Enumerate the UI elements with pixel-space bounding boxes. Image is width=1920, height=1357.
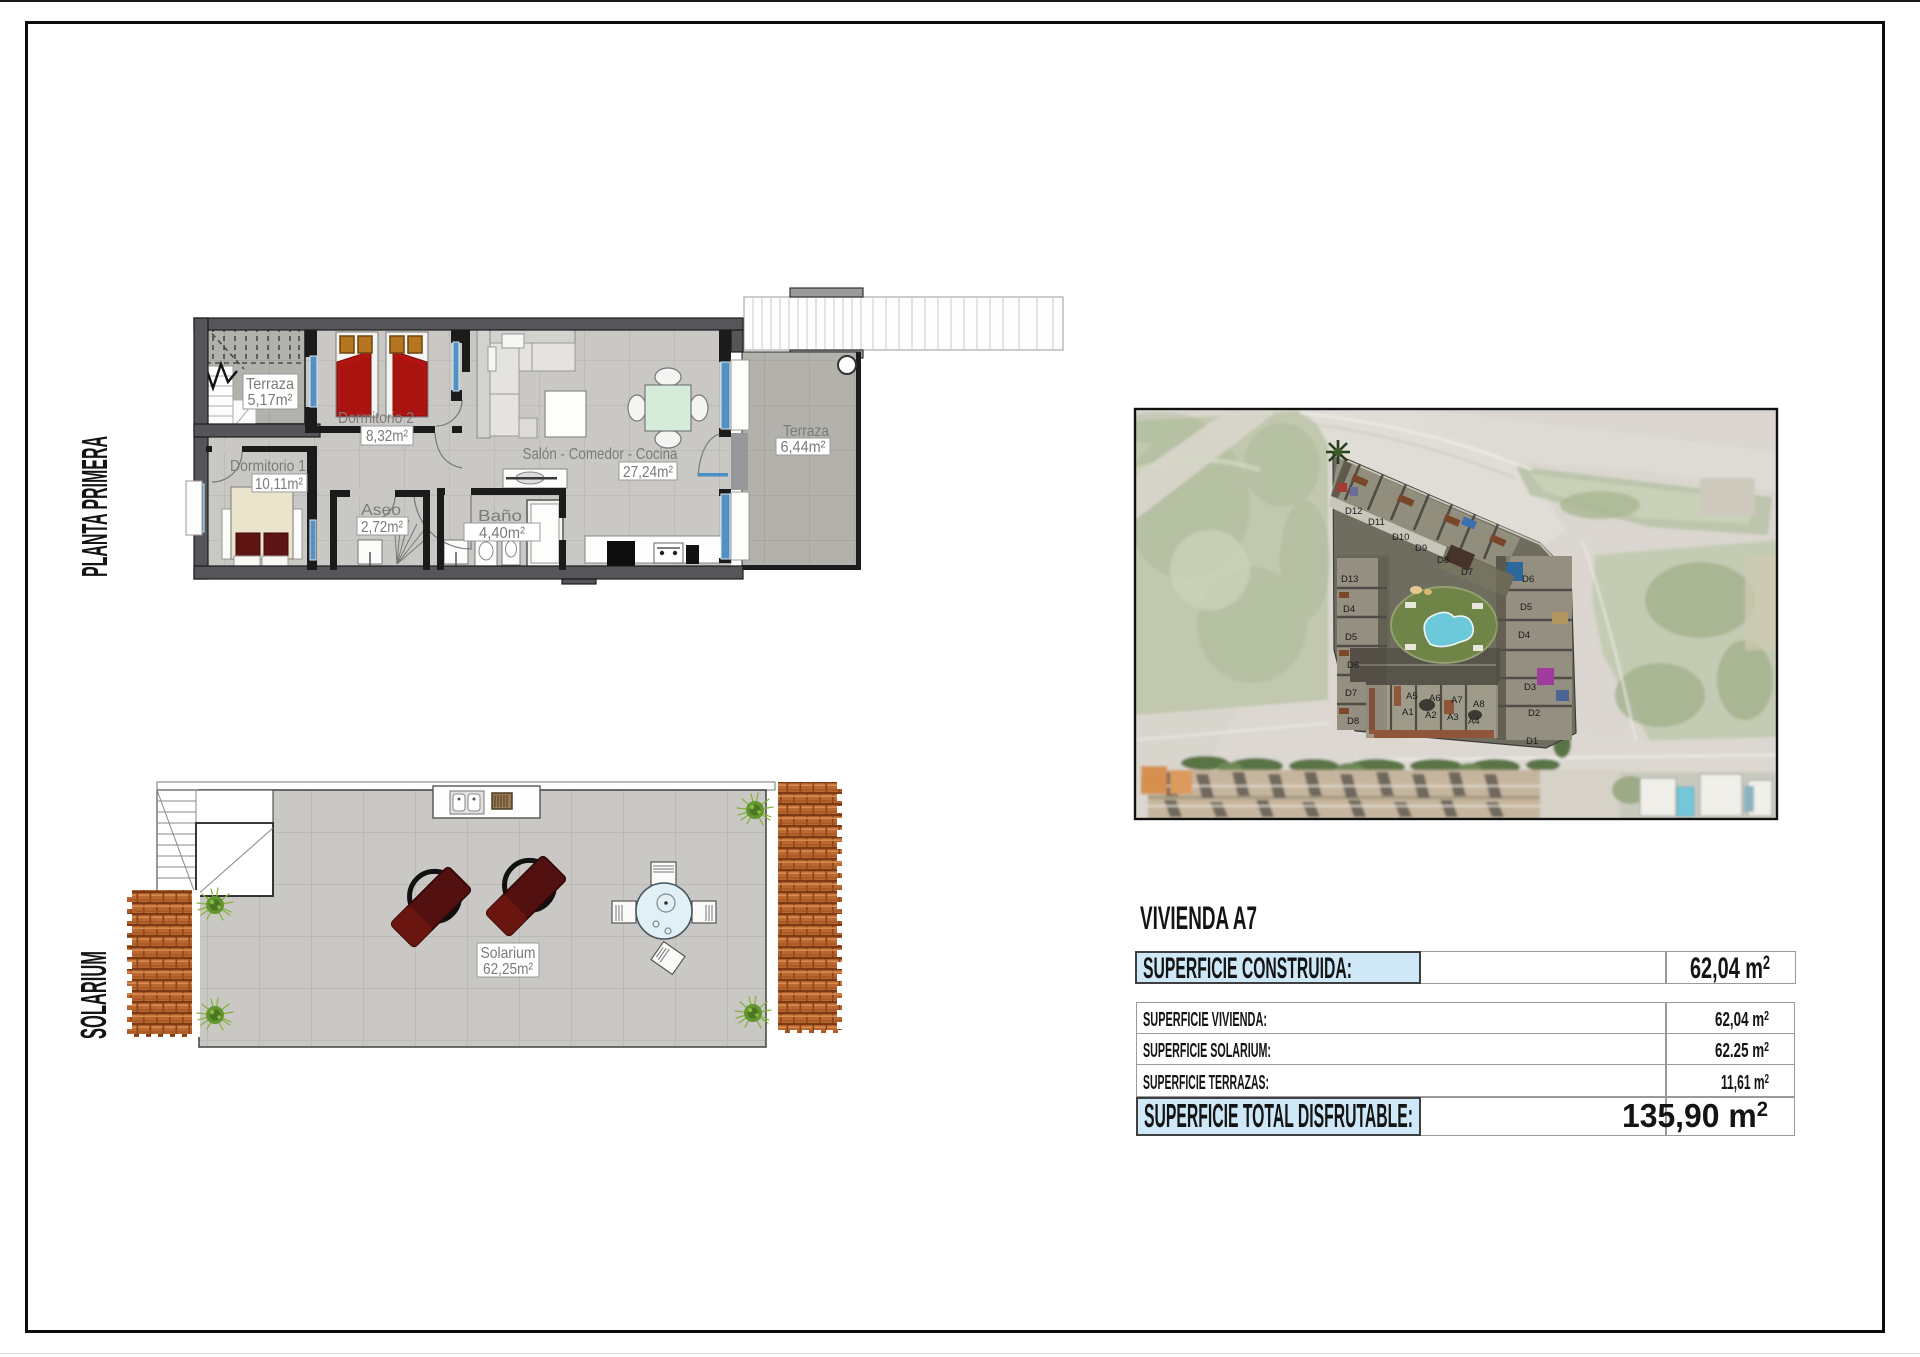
svg-text:62.25 m2: 62.25 m2 [1715,1039,1769,1062]
svg-text:PLANTA PRIMERA: PLANTA PRIMERA [74,436,115,577]
svg-text:SUPERFICIE TOTAL DISFRUTABLE:: SUPERFICIE TOTAL DISFRUTABLE: [1144,1097,1413,1134]
svg-text:SUPERFICIE TERRAZAS:: SUPERFICIE TERRAZAS: [1143,1072,1269,1094]
svg-text:SUPERFICIE CONSTRUIDA:: SUPERFICIE CONSTRUIDA: [1143,952,1352,985]
svg-text:62,04 m2: 62,04 m2 [1690,952,1770,985]
svg-text:62,04 m2: 62,04 m2 [1715,1008,1769,1031]
svg-text:SUPERFICIE VIVIENDA:: SUPERFICIE VIVIENDA: [1143,1009,1267,1031]
svg-text:SOLARIUM: SOLARIUM [73,951,114,1039]
svg-text:SUPERFICIE SOLARIUM:: SUPERFICIE SOLARIUM: [1143,1040,1271,1062]
svg-text:135,90 m2: 135,90 m2 [1622,1097,1768,1134]
svg-text:VIVIENDA A7: VIVIENDA A7 [1140,900,1257,936]
svg-text:11,61 m2: 11,61 m2 [1721,1071,1769,1094]
